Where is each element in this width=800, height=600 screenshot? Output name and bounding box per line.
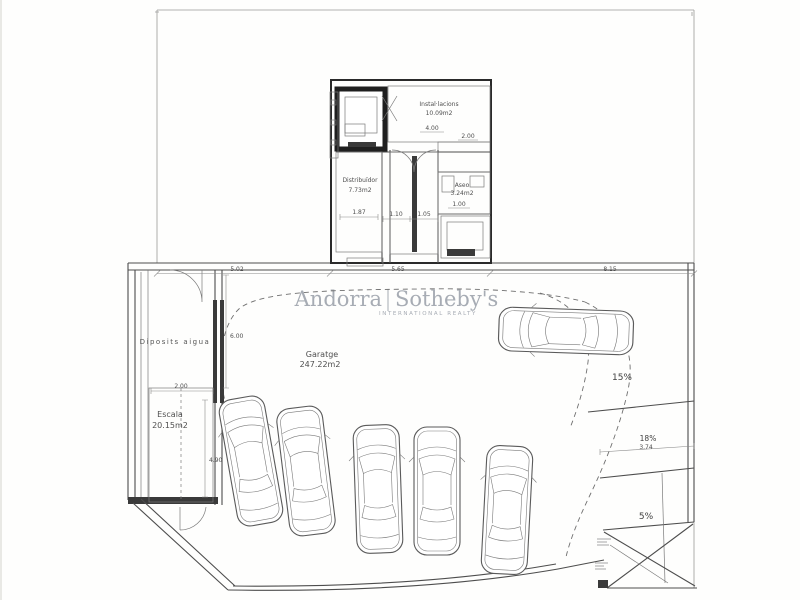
elevator xyxy=(337,89,385,149)
dim-top-right: 8.15 xyxy=(603,266,617,273)
dim-corridor-width: 1.87 xyxy=(352,209,366,216)
label-garatge-name: Garatge xyxy=(306,350,339,359)
garage-door-swing xyxy=(170,270,202,302)
utility-room xyxy=(441,216,490,258)
room-labels: Instal·lacions 10.09m2 Distribuïdor 7.73… xyxy=(140,101,474,430)
illegible-annotation xyxy=(595,563,608,569)
dim-stair-a: 1.10 xyxy=(389,211,403,218)
dim-left-height: 4.90 xyxy=(209,457,223,464)
watermark-left: Andorra xyxy=(294,287,382,311)
label-slope-upper: 15% xyxy=(612,373,632,383)
block-staircase xyxy=(390,150,438,254)
label-distribuidor-area: 7.73m2 xyxy=(348,187,371,194)
dim-top-left: 5.02 xyxy=(230,266,244,273)
parked-car-icon xyxy=(348,424,408,554)
dim-top-mid: 5.65 xyxy=(391,266,405,273)
entering-car-icon xyxy=(498,302,634,360)
dim-stair-width: 2.00 xyxy=(174,383,188,390)
parked-car-icon xyxy=(409,427,465,555)
ramp-area xyxy=(588,401,694,583)
floor-plan-drawing: Andorra Sotheby's INTERNATIONAL REALTY xyxy=(0,0,800,600)
illegible-annotation xyxy=(597,539,611,545)
parked-car-icon xyxy=(212,393,289,529)
dim-installacions-width: 4.00 xyxy=(425,125,439,132)
dim-deposits-height: 6.00 xyxy=(230,333,244,340)
label-slope-middle: 18% xyxy=(640,434,657,443)
label-installacions-name: Instal·lacions xyxy=(419,101,458,108)
dim-ramp-width: 3.74 xyxy=(639,444,653,451)
watermark-subtitle: INTERNATIONAL REALTY xyxy=(379,311,477,317)
label-aseo-name: Aseo xyxy=(455,182,470,189)
label-slope-lower: 5% xyxy=(639,512,654,522)
corridor xyxy=(336,152,382,252)
floor-plan-page: Andorra Sotheby's INTERNATIONAL REALTY xyxy=(0,0,800,600)
dim-stair-b: 1.05 xyxy=(417,211,431,218)
parked-car-icon xyxy=(270,404,341,538)
parked-car-icon xyxy=(476,445,539,576)
label-escala-area: 20.15m2 xyxy=(152,421,188,430)
label-distribuidor-name: Distribuïdor xyxy=(342,177,378,184)
label-aseo-area: 3.24m2 xyxy=(450,190,473,197)
label-garatge-area: 247.22m2 xyxy=(300,360,341,369)
dim-installacions-side: 2.00 xyxy=(461,133,475,140)
entrance-gate xyxy=(595,524,697,588)
vehicles xyxy=(212,302,634,575)
dim-aseo-width: 1.00 xyxy=(452,201,466,208)
label-escala-name: Escala xyxy=(157,410,183,419)
scan-edge xyxy=(0,0,2,600)
upper-block xyxy=(330,80,491,266)
label-installacions-area: 10.09m2 xyxy=(426,110,453,117)
watermark-right: Sotheby's xyxy=(395,287,498,311)
label-diposits: Diposits aigua xyxy=(140,338,211,346)
